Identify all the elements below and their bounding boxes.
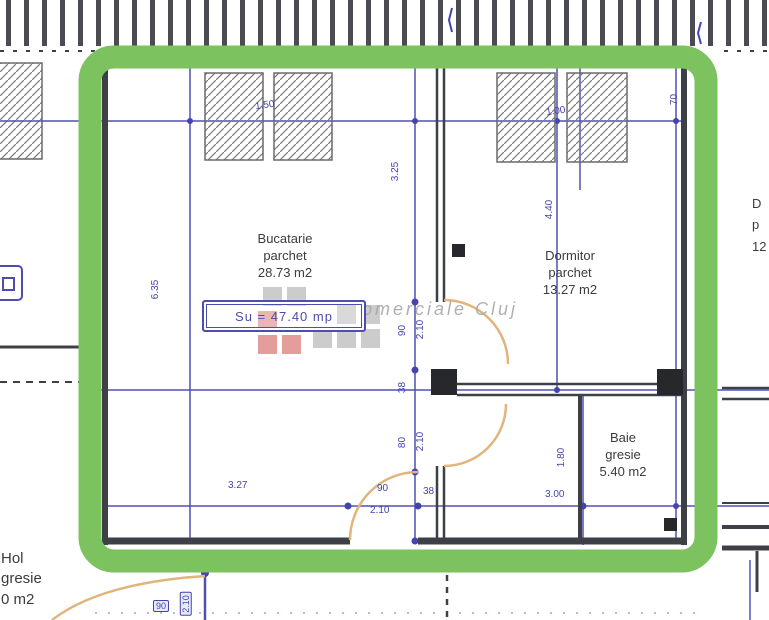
- dimension-label: 3.25: [390, 162, 401, 181]
- room-label-baie: Baie gresie 5.40 m2: [583, 430, 663, 481]
- dimension-label: 2.10: [180, 592, 192, 616]
- room-area: 0 m2: [1, 590, 42, 610]
- room-name: Baie: [583, 430, 663, 447]
- dimension-label: 2.10: [370, 505, 389, 516]
- room-finish: parchet: [515, 265, 625, 282]
- dimension-label: 38: [423, 486, 434, 497]
- dimension-label: 2.10: [415, 432, 426, 451]
- room-label-dormitor: Dormitor parchet 13.27 m2: [515, 248, 625, 299]
- room-finish: parchet: [230, 248, 340, 265]
- dimension-label: 4.40: [544, 200, 555, 219]
- dimension-label: 90: [377, 483, 388, 494]
- room-area: 28.73 m2: [230, 265, 340, 282]
- usable-area-text: Su = 47.40 mp: [235, 309, 333, 324]
- window-piers: [205, 73, 627, 162]
- right-margin-drawing: [722, 388, 769, 620]
- room-finish: gresie: [1, 569, 42, 589]
- dimension-label: 3.00: [545, 489, 564, 500]
- cutoff-text: D: [752, 193, 766, 214]
- dimension-label: 70: [669, 94, 680, 105]
- cutoff-text: p: [752, 214, 766, 235]
- usable-area-label: Su = 47.40 mp: [202, 300, 366, 332]
- room-name: Dormitor: [515, 248, 625, 265]
- dimension-label: 38: [397, 382, 408, 393]
- room-label-neighbor-cutoff: D p 12: [752, 193, 766, 257]
- dimension-label: 2.10: [415, 320, 426, 339]
- wall-hatch-band: [0, 0, 769, 51]
- left-margin-drawing: [0, 63, 82, 382]
- dimension-label: 6.35: [150, 280, 161, 299]
- room-finish: gresie: [583, 447, 663, 464]
- cutoff-text: 12: [752, 236, 766, 257]
- dimension-label: 1.80: [556, 448, 567, 467]
- room-area: 13.27 m2: [515, 282, 625, 299]
- room-label-bucatarie: Bucatarie parchet 28.73 m2: [230, 231, 340, 282]
- dimension-label: 90: [153, 600, 169, 612]
- dimension-label: 90: [397, 325, 408, 336]
- dimension-lines: [0, 66, 769, 620]
- dimension-label: 80: [397, 437, 408, 448]
- dimension-label: 3.27: [228, 480, 247, 491]
- watermark-text: omerciale Cluj: [362, 299, 518, 320]
- room-name: Hol: [1, 549, 42, 569]
- room-name: Bucatarie: [230, 231, 340, 248]
- floor-plan-page: { "rooms": { "bucatarie": { "name": "Buc…: [0, 0, 769, 620]
- room-label-hol: Hol gresie 0 m2: [1, 549, 42, 610]
- room-area: 5.40 m2: [583, 464, 663, 481]
